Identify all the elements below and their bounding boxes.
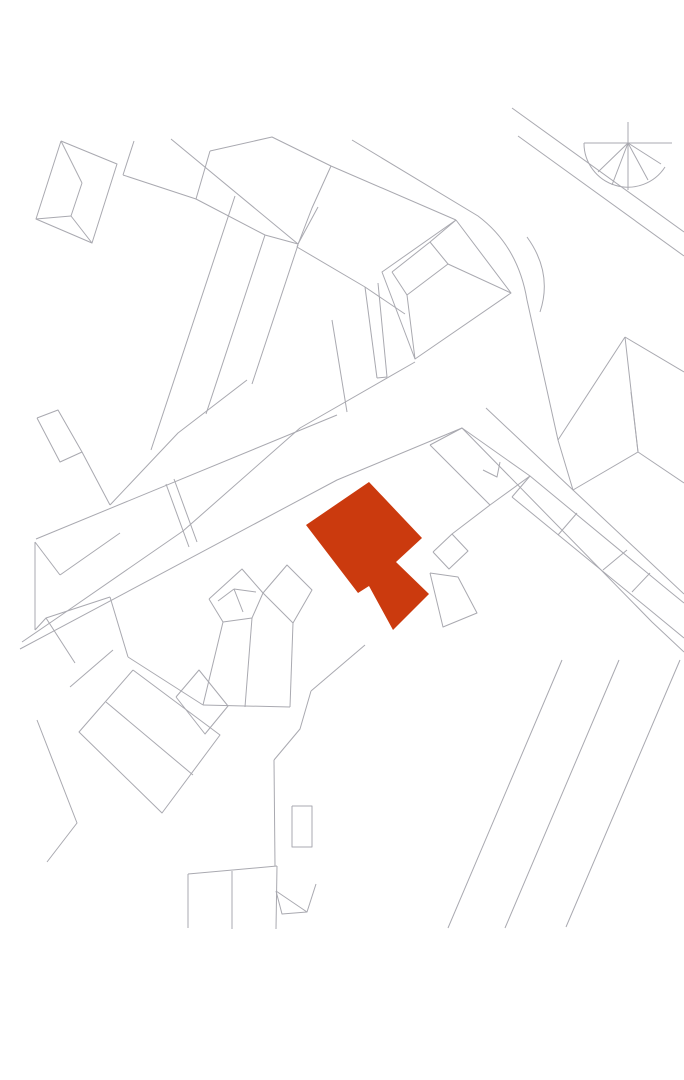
street-rung-b (174, 479, 197, 542)
top-row-top (210, 137, 331, 166)
street-ne-pair-1 (512, 108, 684, 232)
parcel-ne-ext-1 (625, 337, 684, 372)
sliver-b (378, 283, 387, 377)
top-row-div-2 (298, 207, 318, 244)
street-se2-edge (486, 408, 684, 594)
mid-block-bottom (297, 247, 405, 314)
plot-div-1 (151, 196, 235, 450)
house-row-1-hip-a (218, 589, 234, 601)
street-rung-a (166, 484, 189, 547)
bar-bldg-top (512, 497, 684, 638)
big-bldg-link (70, 650, 113, 687)
plot-div-4 (332, 320, 347, 412)
fan-radial-4 (628, 143, 661, 164)
garden-line-3 (290, 623, 293, 707)
big-bldg-annex (176, 670, 228, 734)
bar-rung-1 (558, 513, 577, 535)
plot-div-3 (252, 245, 298, 384)
garden-line-4 (128, 657, 203, 705)
fan-arc (584, 143, 665, 187)
bottom-col-vert (274, 760, 275, 866)
house-nw-hip-1 (36, 216, 71, 219)
sw-front (60, 533, 120, 575)
house-row-1-hip-b (234, 589, 256, 592)
garden-line-2 (245, 618, 252, 707)
front-line-mid (36, 415, 337, 539)
se-parcel-line-3 (566, 660, 680, 927)
top-row-div-3 (123, 141, 134, 175)
street-ne-pair-2 (518, 136, 684, 256)
bottom-step-rect (292, 806, 312, 847)
selected-building (306, 482, 429, 630)
site-plan-figure (0, 0, 684, 1080)
se-parcel-line-2 (505, 660, 619, 928)
big-bldg-sw (79, 670, 220, 813)
pitched-bldg-hip-1 (430, 220, 456, 242)
small-bldg-w (37, 410, 82, 462)
house-nw-ridge (71, 183, 82, 216)
top-row-front (123, 175, 298, 244)
house-row-1-hip-c (234, 589, 243, 612)
bottom-tri-leg (307, 884, 316, 912)
sw-wedge-leg-2 (110, 597, 128, 657)
sliver-a (365, 287, 377, 378)
fan-radial-1 (598, 143, 628, 172)
bar-rung-3 (632, 573, 650, 592)
small-square-link (452, 505, 490, 534)
sw-wedge-leg (46, 618, 75, 663)
top-row-div-1 (196, 151, 210, 199)
sw-corner-link (35, 542, 60, 575)
house-row-1 (209, 569, 263, 622)
mid-block-left (297, 166, 331, 247)
big-bldg-sw-ridge (106, 702, 193, 775)
mid-block-top (331, 166, 456, 220)
garden-line-1 (203, 622, 223, 705)
sliver-base (377, 377, 387, 378)
house-row-2 (263, 565, 312, 623)
pitched-bldg-outline (382, 220, 511, 359)
street-curve-inner (527, 237, 544, 312)
se-parcel-line-1 (448, 660, 562, 928)
fan-radial-3 (628, 143, 648, 180)
small-square-se (433, 534, 468, 569)
bottom-block-v3 (276, 866, 277, 929)
plot-div-2 (206, 235, 265, 414)
fan-radial-2 (612, 143, 628, 185)
parcel-below-red (430, 573, 477, 627)
site-plan-page (0, 0, 684, 1080)
street-curve-outer (352, 140, 558, 440)
sw-long-edge (37, 720, 77, 862)
bar-rung-2 (603, 550, 627, 570)
bar-bldg-bottom (530, 476, 684, 603)
house-nw-outline (36, 141, 117, 243)
bottom-tri (276, 891, 307, 914)
parcel-ne-div (631, 392, 638, 452)
garden-line-5 (203, 705, 290, 707)
pitched-bldg-roof (392, 242, 448, 295)
parcel-ne-quad (558, 337, 638, 490)
parcel-ne-ext-2 (638, 452, 684, 483)
pitched-bldg-hip-2 (448, 264, 511, 293)
bottom-col-diag (274, 691, 311, 760)
house-nw-ridge-2 (61, 141, 82, 183)
highlighted-building-layer (306, 482, 429, 630)
top-row-back (171, 139, 298, 244)
small-bldg-w-leg (82, 452, 110, 505)
front-line-upper (110, 380, 247, 505)
corridor-link (311, 645, 365, 691)
